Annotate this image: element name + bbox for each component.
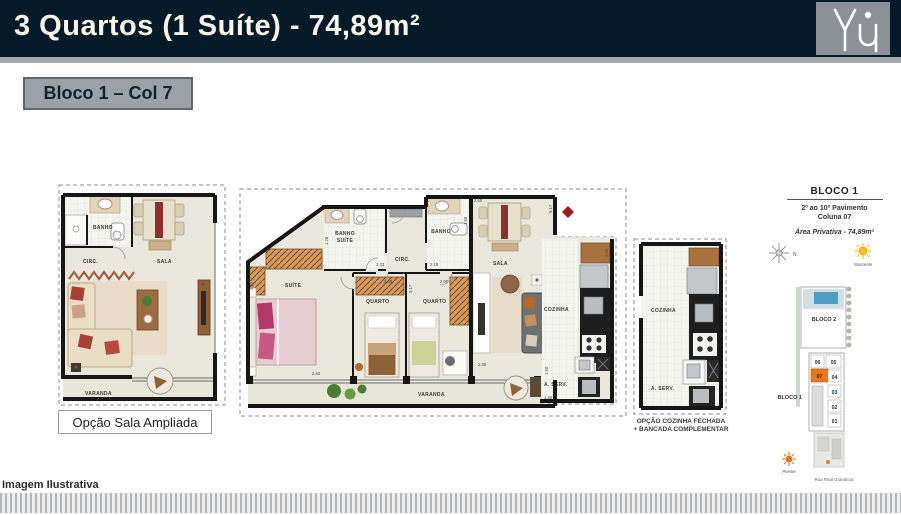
room-label-quarto2: QUARTO [423,299,446,305]
kitchen-caption-line1: OPÇÃO COZINHA FECHADA [622,418,740,426]
site-keyplan: N Nascente BLOCO 2 [768,241,901,486]
dim: 2.30 [478,362,487,367]
kitchen-caption-line2: + BANCADA COMPLEMENTAR [622,426,740,434]
bloco1-label: BLOCO 1 [778,395,802,401]
tv-cabinet [198,280,210,335]
sun-poente-icon [782,452,796,466]
room-label-sala: SALA [157,259,172,265]
dim: 2.18 [430,262,439,267]
poente-label: Poente [782,469,796,474]
street-label: Rua Real Grandeza [815,477,854,482]
page-title: 3 Quartos (1 Suíte) - 74,89m² [14,10,420,43]
unit-label: 02 [832,405,838,411]
dim: 2.00 [440,279,449,284]
room-label-aserv: A. SERV. [651,386,675,392]
unit-label: 06 [815,360,821,366]
keyplan-area: Área Privativa - 74,89m² [768,229,901,236]
dim: 1.50 [544,366,549,375]
red-diamond-marker [562,206,574,218]
room-label-quarto1: QUARTO [366,299,389,305]
coffee-table [137,290,158,330]
dim: 2.50 [474,198,483,203]
kitchen-option-caption: OPÇÃO COZINHA FECHADA + BANCADA COMPLEME… [622,418,740,434]
sala-ampliada-caption: Opção Sala Ampliada [58,410,212,434]
illustrative-note: Imagem Ilustrativa [2,479,99,491]
you-logo [816,2,890,55]
compass-label: N [793,252,797,258]
dim: 1.28 [324,236,329,245]
keyplan-title: BLOCO 1 [768,186,901,197]
brochure-page: 3 Quartos (1 Suíte) - 74,89m² Bloco 1 – … [0,0,901,515]
nascente-label: Nascente [854,262,873,267]
floorplan-kitchen-option: COZINHA A. SERV. [633,238,728,421]
unit-label: 04 [832,375,838,381]
room-label-varanda: VARANDA [418,392,445,398]
room-label-cozinha: COZINHA [544,307,569,313]
dim: 3.17 [408,284,413,293]
tv-panel [473,273,490,353]
bloco-selector-button[interactable]: Bloco 1 – Col 7 [23,77,193,110]
dim: 1.58 [463,216,468,225]
dim: 4.00 [604,248,609,257]
double-bed [247,288,316,376]
dim: 4.07 [249,281,254,290]
keyplan-rule [787,199,883,200]
room-label-cozinha: COZINHA [651,308,676,314]
room-label-varanda: VARANDA [85,391,112,397]
dim: 2.50 [312,371,321,376]
room-label-banho: BANHO [93,225,113,231]
unit-label: 01 [832,419,838,425]
unit-label: 05 [831,360,837,366]
compass-icon [769,243,789,263]
floorplan-sala-ampliada: BANHO CIRC. SALA [57,183,229,413]
keyplan-panel: BLOCO 1 2º ao 10º Pavimento Coluna 07 Ár… [768,186,901,486]
round-chair [147,368,173,394]
header-divider [0,57,901,63]
room-label-suite: SUÍTE [285,281,302,289]
floorplan-main: BANHO SUÍTE BANHO CIRC. SALA [238,185,628,425]
keyplan-floors: 2º ao 10º Pavimento [768,204,901,213]
dim: 2.33 [376,262,385,267]
keyplan-column: Coluna 07 [768,213,901,222]
bloco2-label: BLOCO 2 [812,317,836,323]
room-label-banho-suite-2: SUÍTE [337,236,354,244]
dim: 5.17 [548,204,553,213]
unit-label-highlighted: 07 [817,374,823,380]
unit-label: 03 [832,390,838,396]
you-logo-icon [816,2,890,55]
room-label-sala: SALA [493,261,508,267]
sun-nascente-icon [855,243,871,259]
room-label-banho: BANHO [431,229,451,235]
round-chair [504,376,541,400]
decorative-stripes [0,493,901,513]
room-label-circ: CIRC. [395,257,410,263]
room-label-banho-suite-1: BANHO [335,231,355,237]
room-label-circ: CIRC. [83,259,98,265]
title-bar: 3 Quartos (1 Suíte) - 74,89m² [0,0,901,57]
dim: 1.30 [544,395,553,400]
dim: 2.38 [384,279,393,284]
